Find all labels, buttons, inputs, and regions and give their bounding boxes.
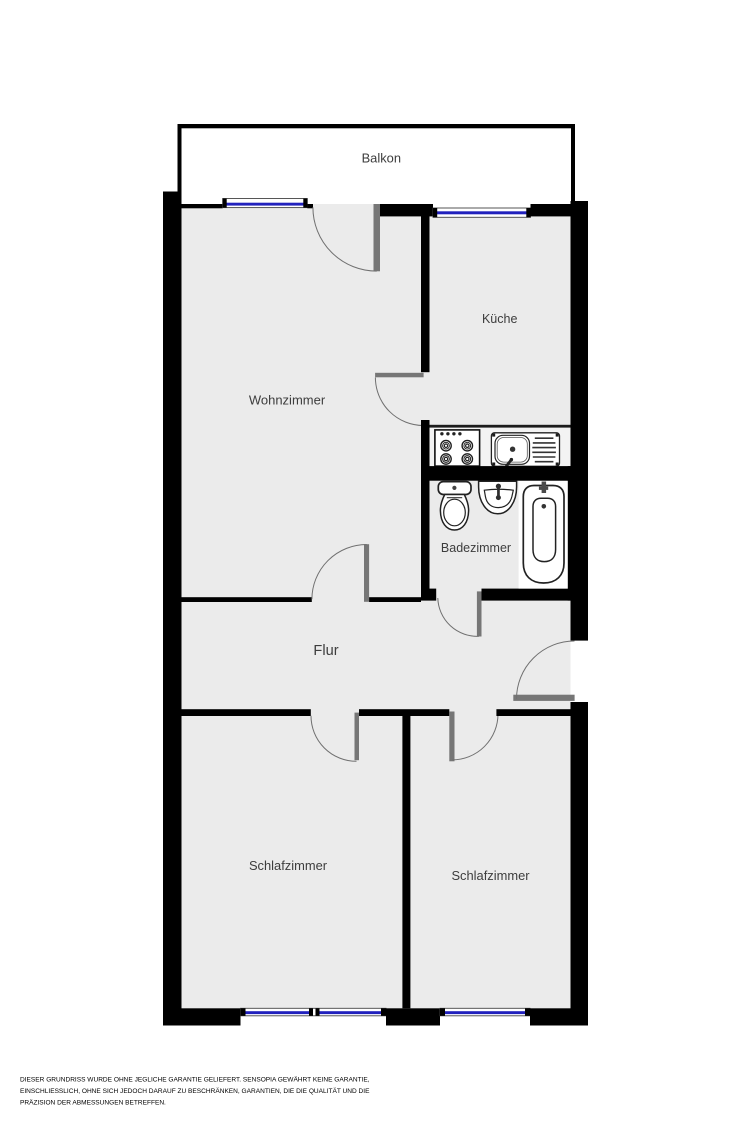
- svg-text:EINSCHLIESSLICH, OHNE SICH JED: EINSCHLIESSLICH, OHNE SICH JEDOCH DARAUF…: [20, 1087, 370, 1095]
- svg-text:Badezimmer: Badezimmer: [441, 541, 511, 555]
- svg-text:DIESER GRUNDRISS WURDE OHNE JE: DIESER GRUNDRISS WURDE OHNE JEGLICHE GAR…: [20, 1076, 370, 1084]
- svg-text:Schlafzimmer: Schlafzimmer: [451, 868, 530, 883]
- svg-text:Küche: Küche: [482, 312, 517, 326]
- svg-text:PRÄZISION DER ABMESSUNGEN BETR: PRÄZISION DER ABMESSUNGEN BETREFFEN.: [20, 1099, 166, 1107]
- svg-text:Wohnzimmer: Wohnzimmer: [249, 392, 326, 407]
- svg-text:Schlafzimmer: Schlafzimmer: [249, 858, 328, 873]
- svg-text:Flur: Flur: [313, 643, 338, 659]
- svg-text:Balkon: Balkon: [362, 150, 401, 165]
